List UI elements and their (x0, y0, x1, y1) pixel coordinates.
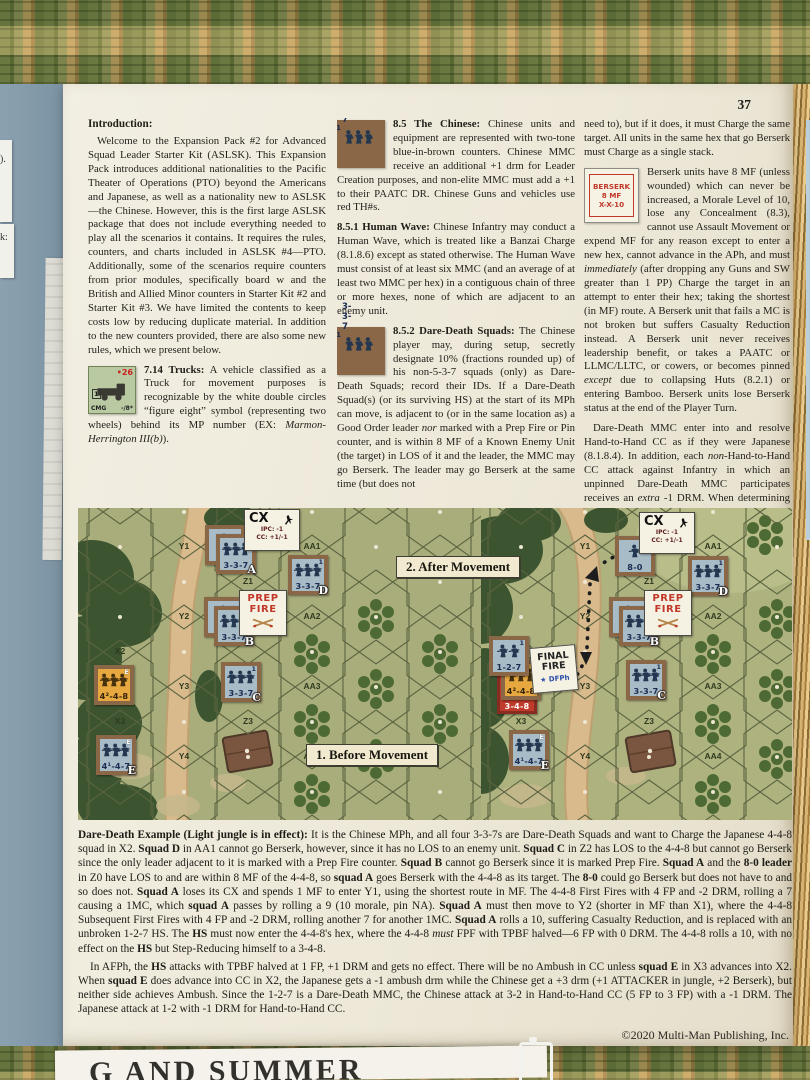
bottom-paper: G AND SUMMER (55, 1045, 547, 1080)
hut (625, 730, 675, 772)
hex-label-Z3: Z3 (644, 716, 654, 726)
running-soldier-icon (282, 512, 295, 525)
truck-side-number: 1 (92, 389, 101, 399)
hex-label-AA3: AA3 (303, 681, 320, 691)
counter-squad-e: E4¹-4-7E (96, 735, 136, 775)
hex-label-X2: X2 (115, 646, 125, 656)
running-soldier-icon (677, 515, 690, 528)
dare-death-example: Dare-Death Example (Light jungle is in e… (78, 828, 792, 1021)
counter-squad-c: 13-3-7C (626, 660, 666, 700)
soldiers-icon (344, 129, 374, 146)
copyright-line: ©2020 Multi-Man Publishing, Inc. (622, 1028, 789, 1043)
berserk-continuation: need to), but if it does, it must Charge… (584, 118, 790, 160)
example-paragraph-1: Dare-Death Example (Light jungle is in e… (78, 828, 792, 956)
paper-scrap-left-1: ). (0, 140, 12, 222)
hex-label-Y3: Y3 (179, 681, 189, 691)
map-panel-before-movement: 1. Before Movement Y1Y2Y3Y4X2X3Z1Z3AA1AA… (78, 508, 481, 820)
chinese-paragraph: 1 5-3-7 8.5 The Chinese: Chinese units a… (337, 118, 575, 215)
counter-squad-c: 13-3-7C (221, 662, 261, 702)
hex-label-Y2: Y2 (580, 611, 590, 621)
human-wave-paragraph: 8.5.1 Human Wave: Chinese Infantry may c… (337, 221, 575, 318)
hex-label-Z1: Z1 (243, 576, 253, 586)
counter-superscript: 1 (337, 124, 341, 132)
counter-halfsquad-1-2-7: 11-2-7 (489, 636, 529, 676)
crossed-rifles-icon (656, 618, 680, 628)
before-movement-caption: 1. Before Movement (306, 744, 438, 766)
marker-prep: PREPFIRE (239, 590, 287, 636)
page-number: 37 (738, 97, 752, 113)
hex-label-Z1: Z1 (644, 576, 654, 586)
paper-scrap-left-2: k: (0, 224, 14, 278)
hex-label-Y2: Y2 (179, 611, 189, 621)
marker-final: FINALFIRE★ DFPh (529, 644, 579, 694)
truck-mp-number: -/8* (121, 405, 133, 412)
photo-of-rulebook-page: ). k: 37 Introduction: Welcome to the Ex… (0, 0, 810, 1080)
counter-squad-d: 13-3-7D (688, 556, 728, 596)
column-chinese-rules: 1 5-3-7 8.5 The Chinese: Chinese units a… (337, 118, 575, 506)
column-introduction: Introduction: Welcome to the Expansion P… (88, 118, 326, 506)
map-example-figure: 1. Before Movement Y1Y2Y3Y4X2X3Z1Z3AA1AA… (78, 508, 792, 820)
truck-counter-illustration: •26 1 CMG -/8* (88, 366, 136, 414)
dare-death-paragraph: 1 3-3-7 8.5.2 Dare-Death Squads: The Chi… (337, 325, 575, 492)
hex-label-Y1: Y1 (580, 541, 590, 551)
counter-superscript: 1 (337, 331, 341, 339)
counter-japanese-4-4-8: E4²-4-8 (94, 665, 134, 705)
marker-cx: CXIPC: -1CC: +1/-1 (244, 509, 300, 551)
berserk-paragraph: BERSERK 8 MF X-X-10 Berserk units have 8… (584, 166, 790, 416)
introduction-paragraph: Welcome to the Expansion Pack #2 for Adv… (88, 135, 326, 358)
hex-label-AA2: AA2 (704, 611, 721, 621)
soldiers-icon (344, 336, 374, 353)
marker-prep: PREPFIRE (644, 590, 692, 636)
berserk-label: BERSERK (590, 182, 633, 191)
hex-label-Y1: Y1 (179, 541, 189, 551)
paper-scrap-text: k: (0, 232, 8, 243)
map-panel-after-movement: Y1Y2Y3Y4X3Z1Z3AA1AA2AA3AA48-08-013-3-7B1… (481, 508, 792, 820)
hex-label-AA2: AA2 (303, 611, 320, 621)
hex-label-AA1: AA1 (704, 541, 721, 551)
example-paragraph-2: In AFPh, the HS attacks with TPBF halved… (78, 960, 792, 1017)
hex-label-Y4: Y4 (580, 751, 590, 761)
clipboard-icon (519, 1042, 553, 1080)
counter-squad-d: 13-3-7D (288, 555, 328, 595)
chinese-counter-illustration: 1 5-3-7 (337, 120, 385, 168)
map-terrain (78, 508, 481, 820)
truck-mp-badge: •26 (117, 368, 133, 377)
hex-label-X3: X3 (115, 716, 125, 726)
bottom-paper-text: G AND SUMMER (89, 1053, 364, 1080)
woven-mat-top (0, 0, 810, 84)
introduction-heading: Introduction: (88, 118, 326, 130)
truck-armament: CMG (91, 405, 106, 412)
crossed-rifles-icon (251, 618, 275, 628)
sheet-edge-left (42, 258, 64, 560)
hex-label-Z3: Z3 (243, 716, 253, 726)
dare-death-cc-paragraph: Dare-Death MMC enter into and resolve Ha… (584, 422, 790, 506)
background-wall-sliver (806, 120, 810, 540)
hex-label-Y4: Y4 (179, 751, 189, 761)
hex-label-X3: X3 (516, 716, 526, 726)
dare-death-counter-illustration: 1 3-3-7 (337, 327, 385, 375)
counter-squad-e: E4¹-4-7E (509, 730, 549, 770)
berserk-mf: 8 MF (590, 191, 633, 200)
column-berserk-rules: need to), but if it does, it must Charge… (584, 118, 790, 506)
hut (222, 730, 272, 772)
marker-cx: CXIPC: -1CC: +1/-1 (639, 512, 695, 554)
hex-label-AA1: AA1 (303, 541, 320, 551)
hex-label-AA4: AA4 (704, 751, 721, 761)
berserk-counter-illustration: BERSERK 8 MF X-X-10 (584, 168, 639, 223)
berserk-morale: X-X-10 (590, 200, 633, 209)
after-movement-caption: 2. After Movement (396, 556, 520, 578)
paper-scrap-text: ). (0, 154, 6, 165)
trucks-paragraph: •26 1 CMG -/8* 7.14 Trucks: A vehicle cl… (88, 364, 326, 447)
rulebook-page: 37 Introduction: Welcome to the Expansio… (63, 84, 793, 1046)
hex-label-Y3: Y3 (580, 681, 590, 691)
hex-label-AA3: AA3 (704, 681, 721, 691)
